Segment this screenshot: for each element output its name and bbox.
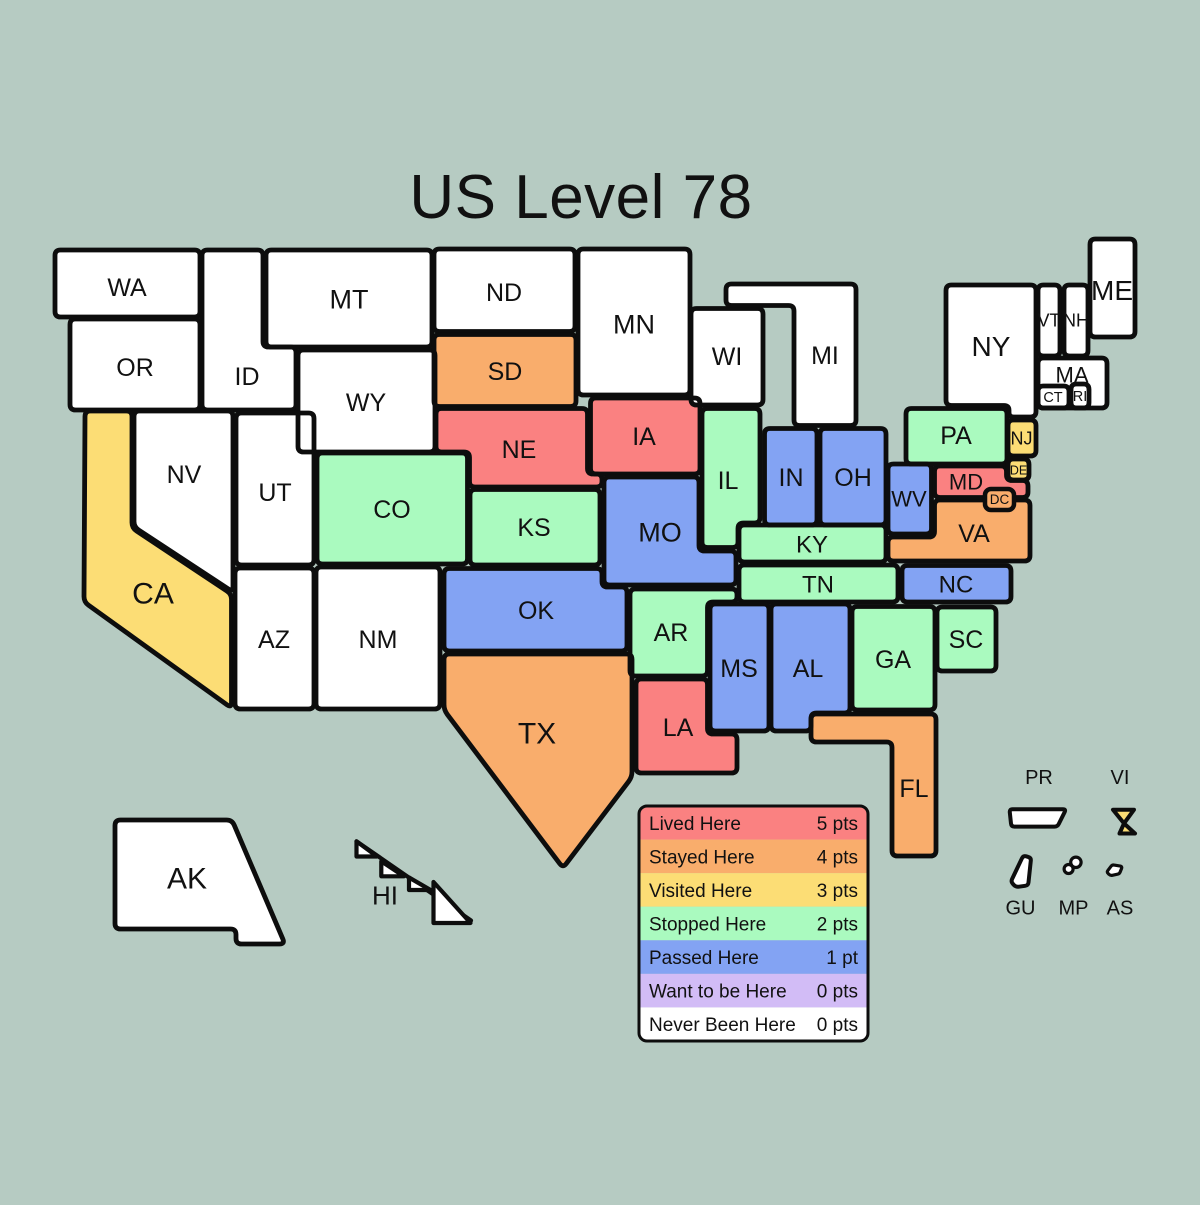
svg-text:AK: AK — [167, 863, 207, 896]
svg-text:ME: ME — [1091, 275, 1133, 306]
svg-text:PR: PR — [1025, 767, 1053, 789]
svg-text:MD: MD — [949, 470, 983, 495]
svg-text:Want to be Here: Want to be Here — [649, 982, 787, 1003]
svg-text:NH: NH — [1063, 310, 1089, 330]
svg-text:Stayed Here: Stayed Here — [649, 847, 755, 868]
svg-text:HI: HI — [372, 880, 398, 910]
svg-text:OH: OH — [834, 464, 872, 492]
svg-text:Lived Here: Lived Here — [649, 814, 741, 835]
svg-text:VT: VT — [1037, 310, 1060, 330]
svg-text:NJ: NJ — [1011, 428, 1033, 448]
svg-text:DE: DE — [1010, 463, 1027, 477]
svg-text:GU: GU — [1006, 897, 1036, 919]
svg-text:MA: MA — [1056, 363, 1089, 388]
svg-text:ID: ID — [235, 363, 260, 391]
svg-text:OK: OK — [518, 597, 554, 625]
svg-text:ND: ND — [486, 279, 522, 307]
svg-text:Never Been Here: Never Been Here — [649, 1015, 796, 1036]
svg-text:WY: WY — [346, 389, 387, 417]
svg-text:MS: MS — [720, 655, 758, 683]
svg-text:VA: VA — [958, 520, 990, 548]
svg-text:IN: IN — [779, 464, 804, 492]
svg-text:Stopped Here: Stopped Here — [649, 915, 766, 936]
svg-text:GA: GA — [875, 646, 911, 674]
svg-text:NM: NM — [359, 626, 398, 654]
svg-text:AL: AL — [793, 655, 824, 683]
svg-text:1 pt: 1 pt — [826, 948, 858, 969]
svg-text:FL: FL — [899, 775, 928, 803]
svg-text:IA: IA — [632, 423, 656, 451]
svg-text:CO: CO — [373, 496, 411, 524]
svg-text:AR: AR — [654, 619, 689, 647]
svg-text:RI: RI — [1073, 389, 1088, 405]
svg-text:5 pts: 5 pts — [817, 814, 858, 835]
svg-text:WV: WV — [891, 487, 927, 512]
svg-text:IL: IL — [718, 467, 739, 495]
svg-text:AZ: AZ — [258, 626, 290, 654]
svg-text:MI: MI — [811, 342, 839, 370]
svg-text:SC: SC — [949, 626, 984, 654]
svg-text:UT: UT — [258, 479, 291, 507]
svg-text:VI: VI — [1111, 767, 1130, 789]
svg-text:MP: MP — [1059, 897, 1089, 919]
svg-text:CT: CT — [1043, 390, 1062, 406]
svg-text:DC: DC — [990, 492, 1010, 507]
svg-text:NC: NC — [939, 571, 974, 598]
svg-text:WA: WA — [107, 274, 147, 302]
svg-text:MT: MT — [330, 284, 369, 314]
svg-text:CA: CA — [132, 578, 174, 611]
svg-text:TN: TN — [802, 571, 834, 598]
svg-text:KY: KY — [796, 531, 828, 558]
svg-text:0 pts: 0 pts — [817, 982, 858, 1003]
svg-text:TX: TX — [518, 718, 556, 751]
svg-text:4 pts: 4 pts — [817, 847, 858, 868]
svg-text:US Level 78: US Level 78 — [409, 163, 752, 232]
svg-text:MO: MO — [638, 518, 682, 548]
svg-text:Passed Here: Passed Here — [649, 948, 759, 969]
svg-text:NE: NE — [502, 436, 537, 464]
svg-text:KS: KS — [517, 514, 550, 542]
svg-text:LA: LA — [663, 714, 694, 742]
svg-text:NV: NV — [167, 461, 202, 489]
svg-text:WI: WI — [712, 343, 743, 371]
svg-text:PA: PA — [940, 422, 972, 450]
svg-text:Visited Here: Visited Here — [649, 881, 752, 902]
svg-text:0 pts: 0 pts — [817, 1015, 858, 1036]
svg-text:3 pts: 3 pts — [817, 881, 858, 902]
svg-text:OR: OR — [116, 354, 154, 382]
svg-text:SD: SD — [488, 358, 523, 386]
svg-text:NY: NY — [972, 331, 1011, 362]
svg-text:AS: AS — [1107, 897, 1134, 919]
svg-text:MN: MN — [613, 309, 655, 339]
svg-text:2 pts: 2 pts — [817, 915, 858, 936]
